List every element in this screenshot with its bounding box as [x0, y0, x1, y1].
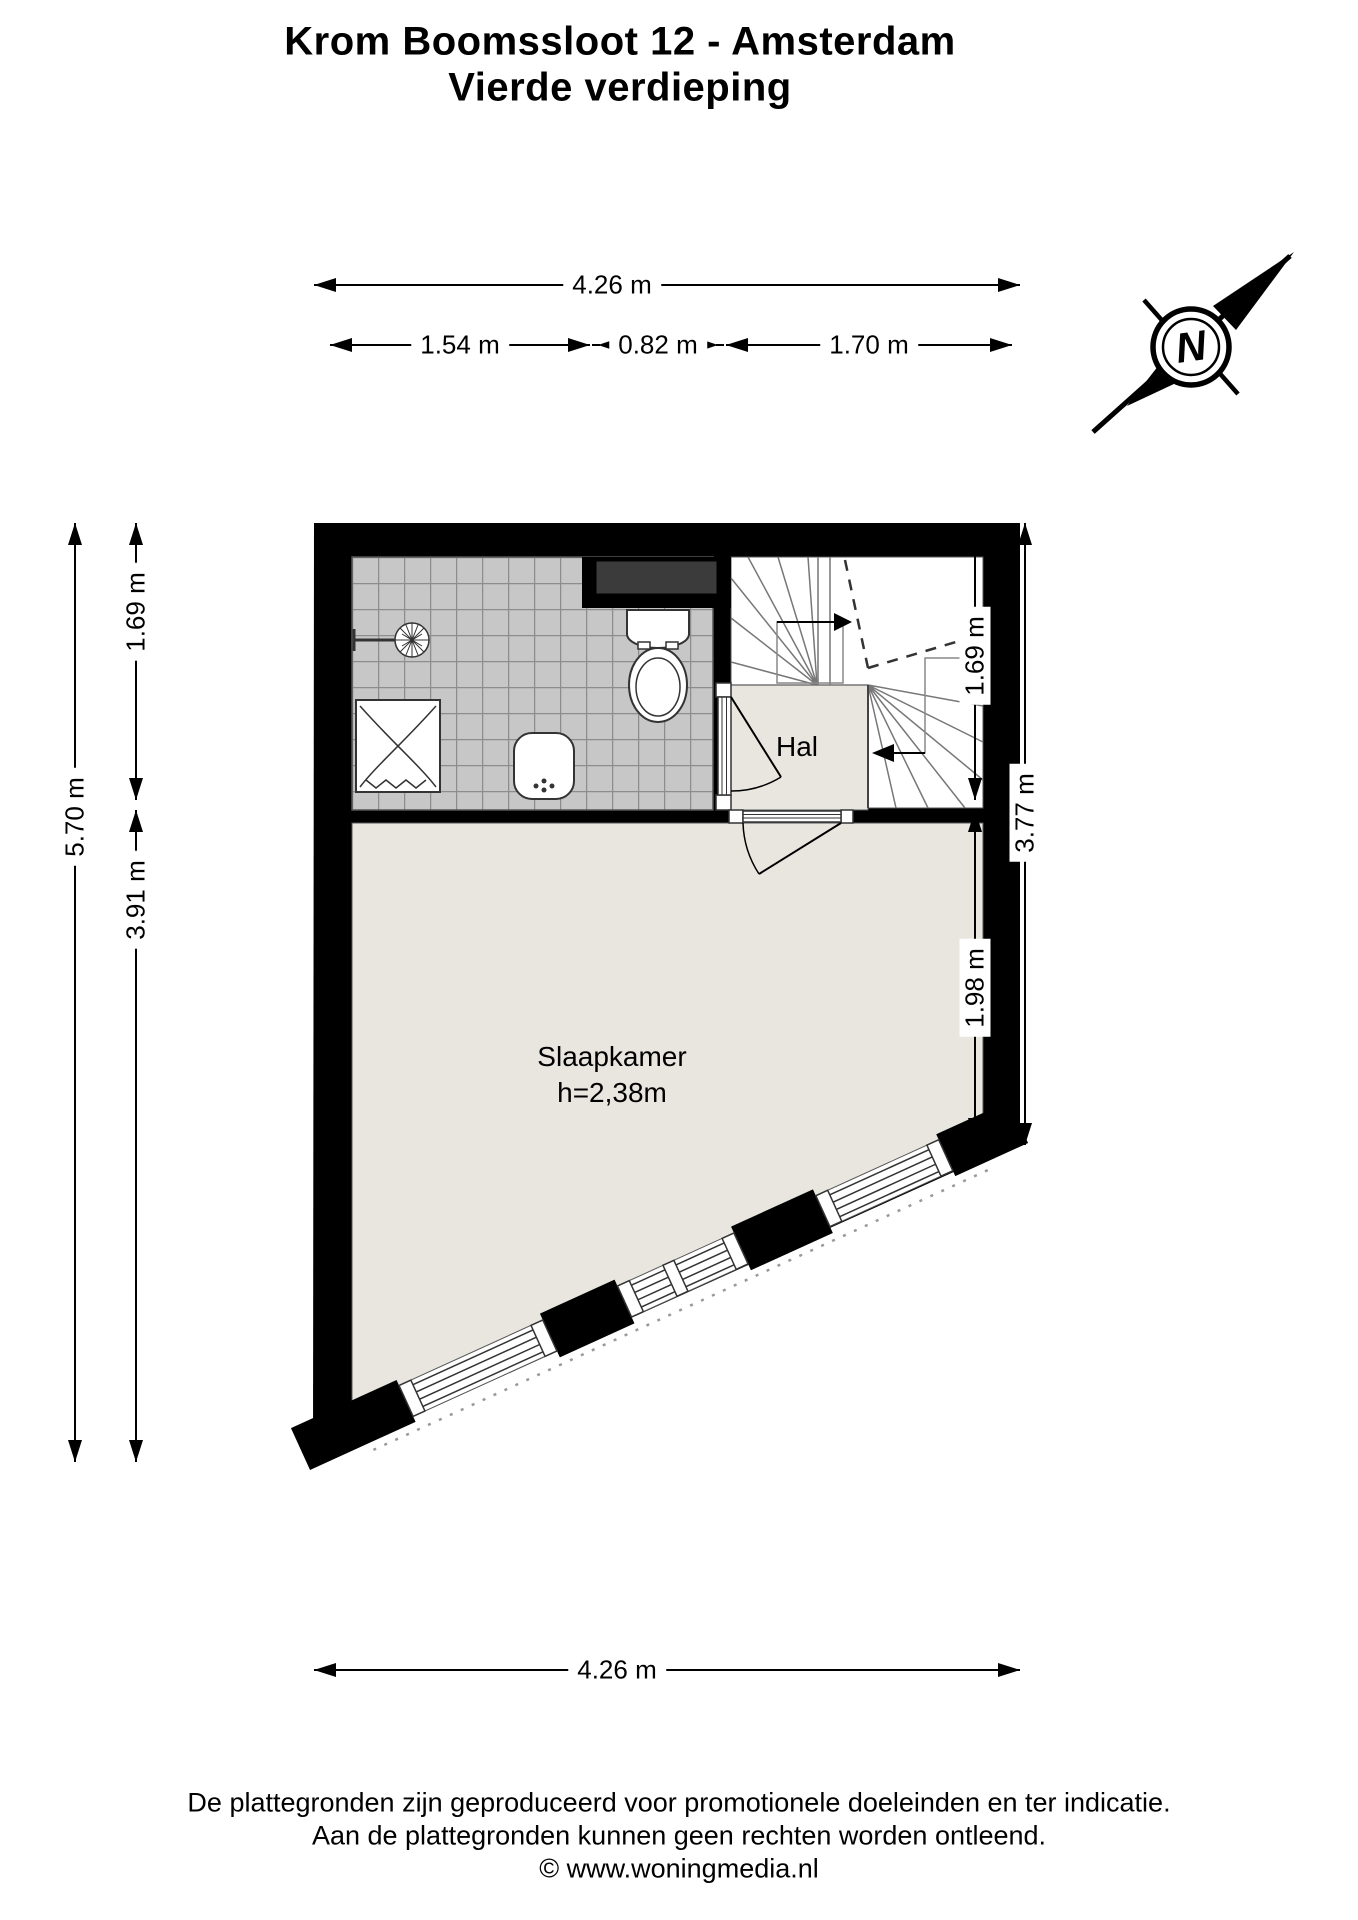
bedroom-floor: [352, 823, 983, 1428]
footer-disclaimer-1: De plattegronden zijn geproduceerd voor …: [187, 1788, 1170, 1819]
dim-right-outer: 3.77 m: [1010, 764, 1041, 862]
dim-right-inner-1: 1.69 m: [960, 607, 991, 705]
footer-copyright: © www.woningmedia.nl: [539, 1854, 819, 1885]
room-label-hall: Hal: [776, 731, 818, 763]
toilet-icon: [627, 610, 689, 722]
dim-right-inner-2: 1.98 m: [960, 939, 991, 1037]
room-label-bedroom: Slaapkamer: [537, 1041, 686, 1073]
floorplan-drawing: [0, 0, 1358, 1920]
sink-icon: [514, 733, 574, 799]
footer-disclaimer-2: Aan de plattegronden kunnen geen rechten…: [312, 1821, 1046, 1852]
dim-left-inner-2: 3.91 m: [121, 851, 152, 949]
dim-top-segment-1: 1.54 m: [411, 330, 509, 361]
dim-top-segment-2: 0.82 m: [609, 330, 707, 361]
compass-north-label: N: [1173, 321, 1210, 373]
page-title: Krom Boomssloot 12 - Amsterdam: [284, 20, 955, 65]
floorplan-page: Krom Boomssloot 12 - Amsterdam Vierde ve…: [0, 0, 1358, 1920]
dim-left-outer: 5.70 m: [60, 768, 91, 866]
room-label-bedroom-height: h=2,38m: [557, 1077, 667, 1109]
page-subtitle: Vierde verdieping: [448, 66, 791, 111]
dim-top-total: 4.26 m: [563, 270, 661, 301]
dim-bottom-total: 4.26 m: [568, 1655, 666, 1686]
shower-tray-icon: [356, 700, 440, 792]
duct-shaft: [582, 557, 731, 608]
dim-top-segment-3: 1.70 m: [820, 330, 918, 361]
dim-left-inner-1: 1.69 m: [121, 563, 152, 661]
